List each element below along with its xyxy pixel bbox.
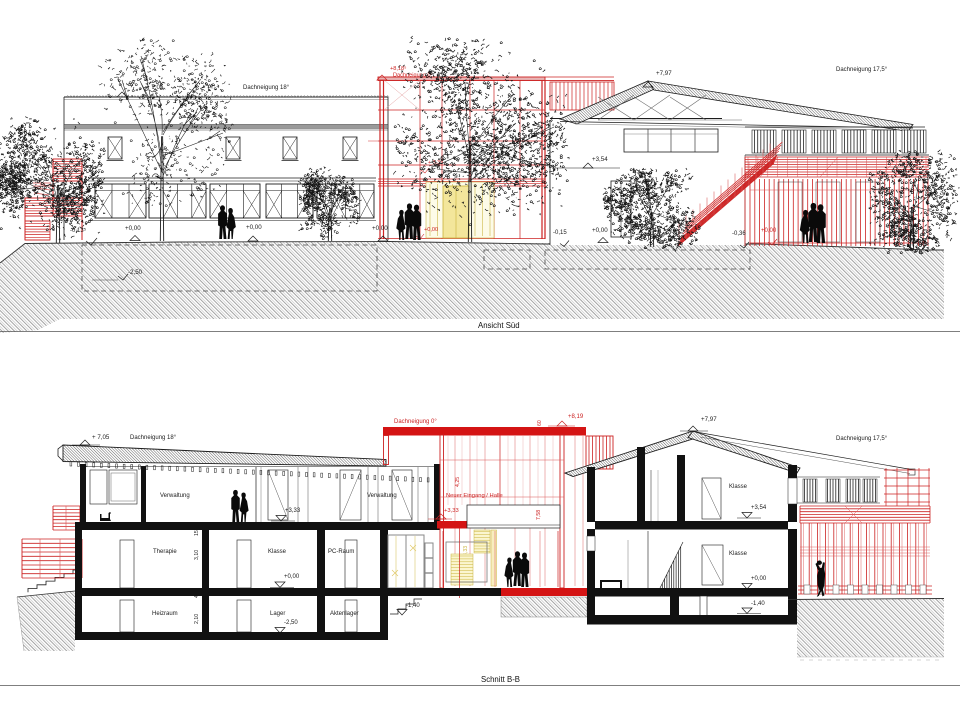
svg-text:+8,19: +8,19 [568, 414, 584, 420]
svg-text:Dachneigung 0°: Dachneigung 0° [394, 419, 437, 425]
svg-text:+0,00: +0,00 [284, 574, 300, 580]
svg-text:Lager: Lager [270, 611, 285, 617]
svg-text:+ 7,05: + 7,05 [92, 434, 110, 441]
svg-text:+0,00: +0,00 [592, 227, 608, 234]
svg-text:Neuer Eingang / Halle: Neuer Eingang / Halle [446, 493, 503, 499]
svg-text:+0,00: +0,00 [125, 225, 141, 232]
svg-text:-0,13⁵: -0,13⁵ [70, 227, 87, 234]
svg-text:-0,36: -0,36 [732, 231, 746, 237]
svg-text:+3,33: +3,33 [285, 508, 301, 514]
svg-text:Dachneigung 17,5°: Dachneigung 17,5° [836, 67, 888, 73]
svg-text:Klasse: Klasse [729, 551, 748, 557]
svg-text:+3,54: +3,54 [751, 505, 767, 511]
svg-text:-1,40: -1,40 [406, 603, 420, 609]
svg-text:+7,97: +7,97 [656, 70, 672, 77]
svg-text:Ansicht Süd: Ansicht Süd [478, 321, 520, 330]
svg-text:2,10: 2,10 [194, 614, 200, 624]
svg-text:Klasse: Klasse [268, 549, 287, 555]
svg-text:Dachneigung 18°: Dachneigung 18° [243, 85, 290, 91]
svg-text:PC-Raum: PC-Raum [328, 549, 354, 555]
svg-text:+0,00: +0,00 [751, 576, 767, 582]
svg-text:Dachneigung 18°: Dachneigung 18° [130, 435, 177, 441]
svg-text:Aktenlager: Aktenlager [330, 611, 359, 617]
svg-text:7,58: 7,58 [536, 510, 542, 520]
svg-text:+0,00: +0,00 [761, 228, 777, 234]
svg-text:15: 15 [194, 530, 200, 536]
svg-text:3,10: 3,10 [194, 550, 200, 560]
svg-text:Schnitt B-B: Schnitt B-B [481, 675, 520, 684]
svg-text:Dachneigung 17,5°: Dachneigung 17,5° [836, 436, 888, 442]
svg-text:+3,33: +3,33 [444, 508, 459, 514]
svg-text:-2,50: -2,50 [128, 269, 143, 276]
svg-text:+8,18⁵: +8,18⁵ [390, 65, 406, 72]
svg-text:+3,54: +3,54 [592, 156, 608, 163]
svg-text:+7,97: +7,97 [701, 416, 717, 423]
svg-text:-0,15: -0,15 [553, 230, 567, 236]
svg-text:Therapie: Therapie [153, 549, 177, 555]
svg-text:+0,00: +0,00 [246, 224, 262, 231]
svg-text:Heizraum: Heizraum [152, 611, 178, 617]
svg-text:Verwaltung: Verwaltung [160, 493, 190, 499]
svg-text:Klasse: Klasse [729, 484, 748, 490]
svg-text:-2,50: -2,50 [284, 620, 298, 626]
svg-text:-1,40: -1,40 [751, 601, 765, 607]
svg-text:4,25: 4,25 [455, 477, 461, 487]
svg-text:+0,00: +0,00 [372, 225, 388, 232]
svg-text:60: 60 [537, 420, 543, 426]
svg-text:+0,00: +0,00 [424, 227, 438, 233]
svg-text:Verwaltung: Verwaltung [367, 493, 397, 499]
